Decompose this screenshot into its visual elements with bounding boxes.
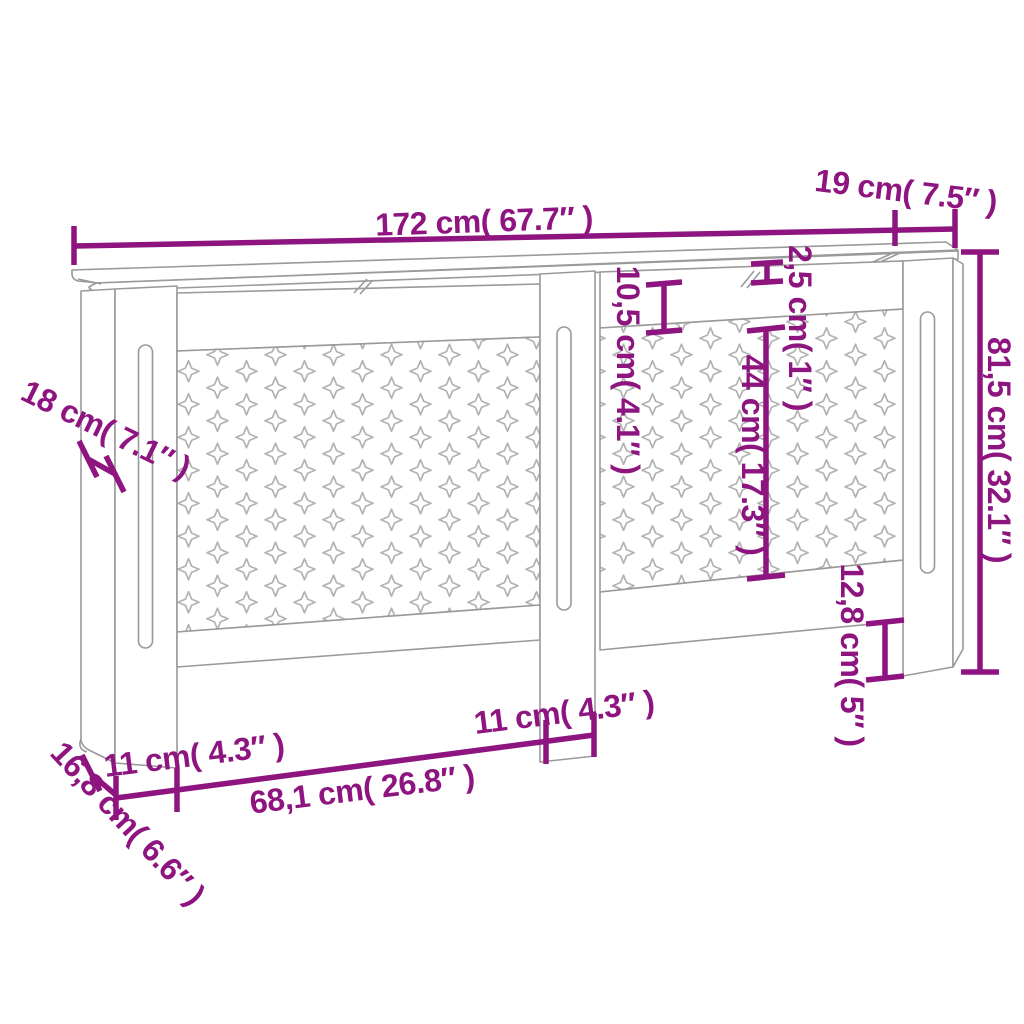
right-slot-cutout [921,312,935,573]
center-stile [540,271,595,762]
cabinet-outline [72,242,963,768]
left-slot-cutout [139,345,153,648]
dimension-diagram: 172 cm( 67.7″ ) 19 cm( 7.5″ ) 2,5 cm( 1″… [0,0,1024,1024]
center-slot-cutout [557,327,571,610]
left-lattice-panel [177,337,540,632]
dimension-label-top-thickness: 2,5 cm( 1″ ) [784,245,816,411]
dimension-label-top-rail-height: 10,5 cm( 4.1″ ) [612,266,644,475]
right-stile [903,258,963,676]
left-stile [80,286,177,768]
dim-bracket-clearance [866,620,904,680]
dimension-label-total-height: 81,5 cm( 32.1″ ) [983,337,1015,563]
dimension-label-lattice-height: 44 cm( 17.3″ ) [737,355,769,555]
dimension-label-bottom-clearance: 12,8 cm( 5″ ) [836,563,868,746]
dimension-label-total-width: 172 cm( 67.7″ ) [375,201,594,241]
